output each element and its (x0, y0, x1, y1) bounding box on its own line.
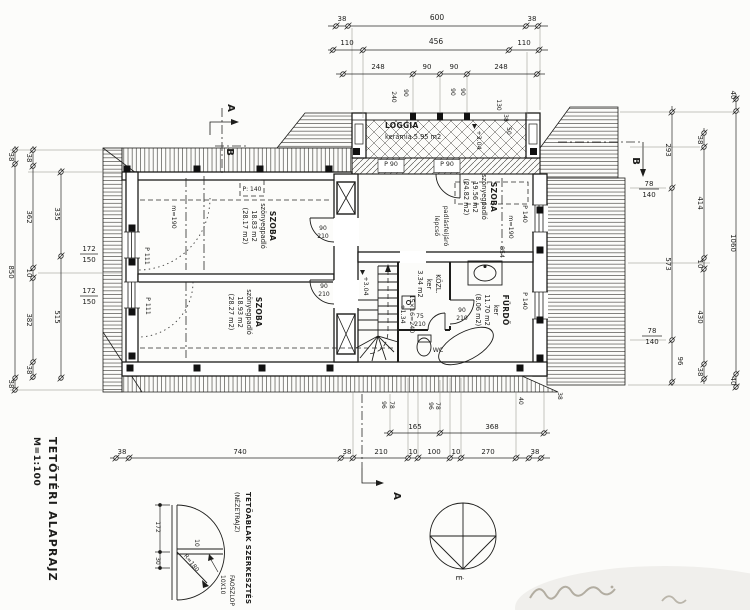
room-gross-area: (8.06 m2) (474, 294, 482, 327)
room-area: 18.93 m2 (236, 296, 244, 328)
door-width: 90 (458, 307, 466, 314)
sill-left-2: 172 (82, 287, 95, 295)
headroom-m190-b: m=190 (507, 215, 514, 238)
headroom-m190-a: m=190 (170, 205, 177, 228)
north-compass: É (430, 503, 496, 581)
room-label-kozl: KÖZL. ker 3.34 m2 (416, 270, 443, 297)
detail-dim-30: 30 (154, 557, 161, 565)
dim-top3-0: 248 (371, 63, 384, 71)
dim-rightouter-2: 40 (729, 377, 737, 386)
dim-rightouter-0: 40 (729, 91, 737, 100)
room-area: 3.34 m2 (416, 270, 424, 297)
detail-dim-10: 10 (193, 539, 200, 547)
dim-rightmid-4: 38 (696, 368, 704, 377)
sill-left-0: 172 (82, 245, 95, 253)
room-floor: szönyegpadló (245, 289, 253, 335)
room-floor: szönyegpadló (259, 203, 267, 249)
dim-854: 854 (498, 246, 505, 258)
dim-rightinner-2: 96 (676, 357, 684, 366)
room-finish-area: kerámia 5.95 m2 (385, 133, 441, 141)
level-stair: +3.04 (362, 276, 369, 295)
dim-bottom1-7: 270 (481, 448, 494, 456)
door-height: 210 (456, 315, 468, 322)
room-area: 11.70 m2 (483, 294, 491, 326)
dim-rightmid-3: 430 (696, 310, 704, 323)
room-area: 19.56 m2 (471, 181, 479, 213)
dim-rightinner-1: 573 (664, 257, 672, 270)
stair-mid-level: +1.34 (399, 304, 406, 323)
section-b-left: B (224, 148, 235, 156)
washbasin (468, 261, 502, 285)
title-block: TETŐTÉRI ALAPRAJZ M=1:100 (31, 437, 60, 582)
window-p140-b: P 140 (521, 292, 528, 310)
room-label-szoba-mid: SZOBA szönyegpadló 19.56 m2 (24.82 m2) (462, 174, 498, 220)
door-width: 90 (319, 225, 327, 232)
dim-leftmid-4: 38 (25, 366, 33, 375)
dim-bottom1-6: 10 (452, 448, 461, 456)
dim-bottom1-5: 100 (427, 448, 440, 456)
dim-leftouter-0: 38 (7, 153, 15, 162)
attic-access-label: padlásfeljáró lépcső (433, 206, 450, 247)
dim-topsmall-2: 90 (449, 88, 456, 96)
section-a-top: A (225, 104, 236, 112)
floor-plan-scan: 38 600 38 110 456 110 248 90 90 248 240 … (0, 0, 750, 610)
dim-leftmid-1: 362 (25, 210, 33, 223)
dim-leftinner-1: 515 (53, 310, 61, 323)
door-p90-right: P 90 (440, 161, 454, 168)
dim-rightouter-1: 1060 (729, 234, 737, 252)
dim-bottom1-1: 740 (233, 448, 246, 456)
dim-bottom1-4: 10 (409, 448, 418, 456)
window-p111-b: P 111 (144, 297, 151, 315)
detail-radius: R=180 (182, 553, 200, 574)
door-width: 90 (320, 283, 328, 290)
dim-top2-2: 110 (517, 39, 530, 47)
dim-leftouter-2: 38 (7, 380, 15, 389)
dim-bottomsmall-2: 96 (427, 402, 434, 410)
sill-right-1: 140 (642, 191, 655, 199)
compass-north-label: É (454, 576, 463, 581)
window-p111-a: P 111 (143, 247, 150, 265)
dim-top3-2: 90 (450, 63, 459, 71)
dim-topsmall-1: 90 (402, 89, 409, 97)
dim-top1-1: 600 (430, 13, 445, 22)
dim-bottom2-1: 368 (485, 423, 498, 431)
dim-leftinner-0: 335 (53, 207, 61, 220)
dim-top2-0: 110 (340, 39, 353, 47)
sill-left-1: 150 (82, 256, 95, 264)
dim-leftmid-0: 38 (25, 154, 33, 163)
sill-right-2: 78 (648, 327, 657, 335)
room-area: 18.83 m2 (250, 210, 258, 242)
dim-bottomsmall-1: 78 (388, 401, 395, 409)
dim-leftouter-1: 850 (7, 265, 15, 278)
window-p140-box: P: 140 (243, 186, 262, 193)
dim-bottom2-0: 165 (408, 423, 421, 431)
dim-bottomsmall-4: 40 (517, 397, 524, 405)
attic-access-line1: padlásfeljáró (442, 206, 450, 247)
door-size-tl: 90 210 (317, 225, 329, 240)
window-p140-a: P 140 (521, 205, 528, 223)
door-width: 75 (416, 313, 424, 320)
room-floor: szönyegpadló (480, 174, 488, 220)
room-floor: ker (492, 305, 500, 316)
detail-subtitle: (NÉZETRAJZ) (233, 492, 242, 532)
attic-access-line2: lépcső (433, 216, 442, 236)
dim-top3-1: 90 (423, 63, 432, 71)
dim-rightinner-0: 293 (664, 143, 672, 156)
drawing-scale: M=1:100 (31, 437, 41, 486)
door-height: 210 (317, 233, 329, 240)
room-name: LOGGIA (385, 121, 419, 130)
drawing-title: TETŐTÉRI ALAPRAJZ (46, 437, 60, 582)
level-loggia: +3.04 (475, 130, 482, 149)
sill-right-0: 78 (645, 180, 654, 188)
dim-bottom1-8: 38 (531, 448, 540, 456)
detail-post-callout-2: 10X10 (219, 575, 226, 595)
dim-top3-3: 248 (494, 63, 507, 71)
dim-top1-2: 38 (528, 15, 537, 23)
door-height: 210 (318, 291, 330, 298)
room-name: FÜRDŐ (501, 294, 510, 325)
dim-leftmid-2: 10 (25, 269, 33, 278)
room-gross-area: (24.82 m2) (462, 179, 470, 216)
section-b-right: B (630, 157, 641, 165)
room-name: SZOBA (489, 182, 498, 212)
toilet (417, 335, 431, 356)
sill-right-3: 140 (645, 338, 658, 346)
room-gross-area: (28.17 m2) (241, 208, 249, 245)
dim-topsmall-5: 38 (502, 114, 509, 122)
section-a-bottom: A (391, 492, 402, 500)
dim-bottom1-0: 38 (118, 448, 127, 456)
room-name: SZOBA (268, 211, 277, 241)
dim-topsmall-0: 240 (390, 91, 397, 103)
door-size-bath: 90 210 (456, 307, 468, 322)
room-name: SZOBA (254, 297, 263, 327)
door-size-wc: 75 210 (414, 313, 426, 328)
door-p90-left: P 90 (384, 161, 398, 168)
dim-top2-1: 456 (429, 37, 444, 46)
dim-bottomsmall-0: 96 (380, 401, 387, 409)
room-label-wc: WC (433, 347, 444, 354)
detail-dim-172: 172 (154, 521, 161, 533)
detail-post-callout-1: FAOSZLOP (228, 575, 235, 606)
room-label-szoba-bl: SZOBA szönyegpadló 18.93 m2 (28.27 m2) (227, 289, 263, 335)
scan-artifacts (515, 566, 750, 610)
dim-rightmid-0: 38 (696, 136, 704, 145)
door-height: 210 (414, 321, 426, 328)
dim-leftmid-3: 382 (25, 313, 33, 326)
dim-topsmall-3: 90 (459, 88, 466, 96)
dim-bottomsmall-3: 78 (434, 402, 441, 410)
room-floor: ker (425, 279, 433, 290)
dim-topsmall-6: 50 (505, 127, 512, 135)
roof-window-detail: TETŐABLAK SZERKESZTÉS (NÉZETRAJZ) R=180 … (154, 492, 253, 606)
room-label-szoba-tl: SZOBA szönyegpadló 18.83 m2 (28.17 m2) (241, 203, 277, 249)
dim-bottomsmall-5: 38 (556, 392, 563, 400)
dim-rightmid-1: 414 (696, 196, 704, 210)
plan-drawing: 38 600 38 110 456 110 248 90 90 248 240 … (0, 0, 750, 610)
detail-title: TETŐABLAK SZERKESZTÉS (244, 492, 253, 604)
dim-topsmall-4: 130 (495, 99, 502, 111)
dim-bottom1-3: 210 (374, 448, 387, 456)
room-gross-area: (28.27 m2) (227, 294, 235, 331)
dim-bottom1-2: 38 (343, 448, 352, 456)
room-label-furdo: FÜRDŐ ker 11.70 m2 (8.06 m2) (474, 294, 510, 327)
dim-rightmid-2: 10 (696, 260, 704, 269)
door-size-bl: 90 210 (318, 283, 330, 298)
sill-left-3: 150 (82, 298, 95, 306)
room-name: KÖZL. (434, 274, 443, 293)
dim-top1-0: 38 (338, 15, 347, 23)
